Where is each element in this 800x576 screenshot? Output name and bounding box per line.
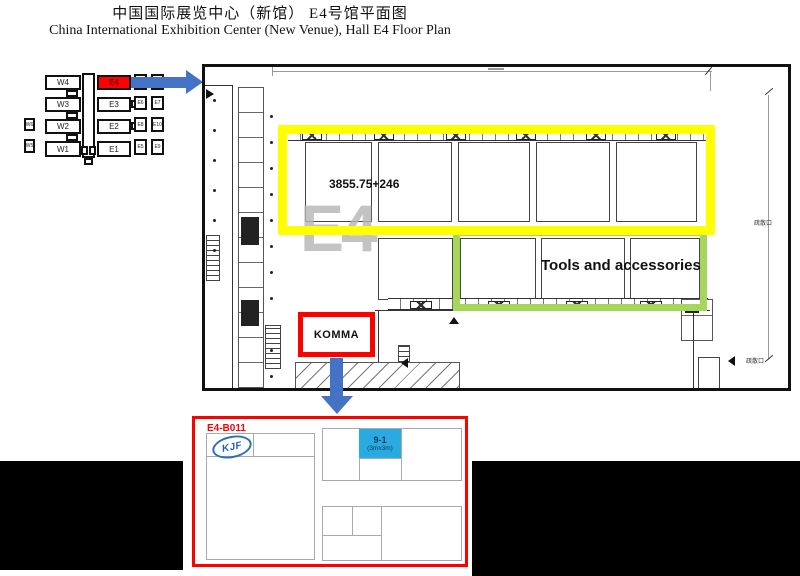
hall-e1: E1: [97, 141, 131, 157]
booth-block: [378, 238, 453, 300]
corridor-block: [81, 146, 88, 155]
komma-callout: KOMMA: [298, 312, 375, 357]
dimension-line: [272, 71, 712, 72]
column-dot: [213, 159, 216, 162]
dimension-slash: [765, 88, 773, 95]
column-dot: [270, 297, 273, 300]
stairs: [265, 325, 281, 369]
kjf-logo-text: KJF: [221, 439, 243, 454]
column-dot: [270, 349, 273, 352]
wall: [205, 85, 233, 86]
side-room: [698, 357, 720, 391]
hall-e3-label: E3: [109, 100, 119, 109]
hall-w2-label: W2: [57, 122, 69, 131]
page-title: 中国国际展览中心（新馆） E4号馆平面图: [0, 2, 520, 23]
hall-w6-label: W6: [26, 122, 34, 128]
dimension-tick: [272, 67, 273, 76]
wall: [232, 85, 233, 389]
hall-e2: E2: [97, 119, 131, 134]
mask-left: [0, 461, 183, 570]
hall-w2: W2: [45, 119, 81, 134]
kjf-logo: KJF: [210, 432, 254, 462]
hall-connector: [66, 112, 78, 119]
column-dot: [270, 245, 273, 248]
hall-e1-label: E1: [109, 145, 119, 154]
hall-e9-label: E9: [154, 144, 160, 150]
column-dot: [270, 115, 273, 118]
floor-plan: E4 3855.75+246 Tools and accessories 疏散口…: [202, 64, 791, 391]
exit-label-bottom: 疏散口: [746, 356, 764, 365]
column-dot: [270, 375, 273, 378]
hall-e7: E7: [151, 96, 164, 110]
column-dot: [213, 249, 216, 252]
green-zone-label: Tools and accessories: [541, 257, 701, 274]
komma-label: KOMMA: [314, 329, 359, 341]
hall-w5: W5: [24, 139, 35, 153]
column-dot: [213, 129, 216, 132]
dimension-extension: [710, 71, 711, 91]
area-label: 3855.75+246: [329, 177, 399, 191]
column-dot: [213, 219, 216, 222]
hall-e4-label: E4: [109, 78, 119, 87]
dimension-slash: [765, 355, 773, 362]
column-dot: [270, 141, 273, 144]
stair-block: [241, 300, 259, 326]
hall-w1-label: W1: [57, 145, 69, 154]
dimension-line-vertical: [768, 95, 769, 359]
hall-e6-label: E6: [137, 100, 143, 106]
booth-size-label: (3mx3m): [367, 445, 393, 452]
hall-w3: W3: [45, 97, 81, 112]
hall-e5: E5: [134, 139, 147, 155]
column-dot: [270, 219, 273, 222]
hall-e4-highlighted: E4: [97, 75, 131, 90]
hall-e10: E10: [151, 117, 164, 132]
hall-e7-label: E7: [154, 100, 160, 106]
column-dot: [270, 271, 273, 274]
hatched-area: [295, 362, 460, 389]
booth-detail-panel: E4-B011 KJF 9-1 (3mx3m): [192, 416, 468, 567]
hall-e10-label: E10: [153, 122, 162, 128]
hall-connector: [66, 134, 78, 141]
stairs: [206, 235, 220, 281]
hall-w3-label: W3: [57, 100, 69, 109]
corridor-block: [89, 146, 96, 155]
page-subtitle: China International Exhibition Center (N…: [0, 23, 500, 39]
corridor-stub: [84, 158, 93, 165]
mask-right: [472, 461, 800, 576]
detail-booth-top-right: 9-1 (3mx3m): [322, 428, 462, 481]
hall-w1: W1: [45, 141, 81, 157]
hall-e2-label: E2: [109, 122, 119, 131]
hall-w4: W4: [45, 75, 81, 90]
exit-marker-icon: [401, 358, 408, 368]
detail-booth-bottom-right: [322, 506, 462, 561]
plan-marker-icon: [206, 89, 214, 99]
hall-e6: E6: [134, 96, 147, 110]
hall-w4-label: W4: [57, 78, 69, 87]
column-dot: [270, 193, 273, 196]
column-dot: [270, 167, 273, 170]
column-dot: [213, 189, 216, 192]
exit-label-top: 疏散口: [754, 218, 772, 227]
hall-w5-label: W5: [26, 143, 34, 149]
stair-block: [241, 217, 259, 245]
hall-e9: E9: [151, 139, 164, 155]
column-dot: [213, 99, 216, 102]
hall-e8-label: E8: [137, 122, 143, 128]
booth-9-1: 9-1 (3mx3m): [359, 429, 401, 458]
hall-e8: E8: [134, 117, 147, 132]
detail-booth-left: KJF: [206, 433, 315, 560]
hall-e3: E3: [97, 97, 131, 112]
hall-w6: W6: [24, 118, 35, 131]
exit-marker-icon: [728, 356, 735, 366]
booth-number-label: 9-1: [373, 435, 386, 445]
hall-connector: [66, 90, 78, 97]
wall: [693, 310, 694, 390]
hall-e5-label: E5: [137, 144, 143, 150]
entrance-marker-icon: [449, 317, 459, 324]
dimension-text-mark: [488, 68, 504, 70]
